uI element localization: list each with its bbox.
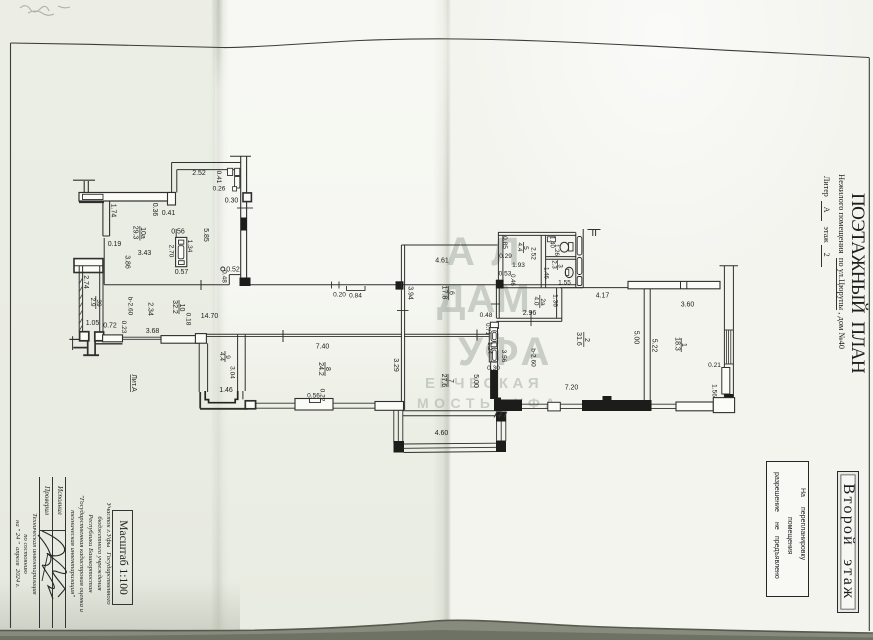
svg-text:0.71: 0.71: [484, 323, 490, 335]
svg-text:0.57: 0.57: [175, 269, 189, 276]
svg-text:0.85: 0.85: [501, 236, 508, 249]
svg-text:17.8: 17.8: [441, 286, 448, 300]
svg-text:1.74: 1.74: [110, 204, 117, 218]
svg-text:4.4: 4.4: [516, 242, 523, 251]
svg-text:0.41: 0.41: [215, 171, 222, 184]
svg-text:0.19: 0.19: [108, 241, 122, 248]
svg-text:Лит.А: Лит.А: [130, 374, 137, 392]
svg-text:7.40: 7.40: [316, 344, 330, 351]
svg-text:4.60: 4.60: [435, 430, 449, 437]
svg-text:3.86: 3.86: [124, 255, 131, 269]
svg-text:4.61: 4.61: [435, 258, 449, 265]
svg-text:2.74: 2.74: [82, 275, 89, 289]
svg-text:0.21: 0.21: [708, 362, 721, 369]
svg-text:1.34: 1.34: [186, 240, 193, 253]
svg-text:2: 2: [583, 338, 590, 342]
svg-text:0.18: 0.18: [184, 313, 191, 326]
svg-text:4.0: 4.0: [532, 296, 539, 305]
svg-text:2.52: 2.52: [529, 247, 536, 260]
svg-text:3.04: 3.04: [228, 366, 235, 379]
svg-text:5.22: 5.22: [651, 339, 658, 353]
svg-text:b-2.60: b-2.60: [529, 348, 536, 367]
svg-text:14.70: 14.70: [201, 313, 219, 320]
svg-text:1.05: 1.05: [86, 320, 100, 327]
svg-text:0.56: 0.56: [171, 229, 185, 236]
svg-text:2.3: 2.3: [550, 260, 556, 269]
svg-text:5.00: 5.00: [472, 374, 479, 388]
svg-text:1.93: 1.93: [512, 262, 525, 269]
svg-text:1.46: 1.46: [219, 387, 233, 394]
svg-text:0.29: 0.29: [499, 253, 512, 260]
svg-text:3.94: 3.94: [407, 286, 414, 300]
svg-text:18.3: 18.3: [673, 337, 680, 351]
svg-text:0.41: 0.41: [162, 210, 176, 217]
svg-text:2.96: 2.96: [523, 310, 537, 317]
svg-text:31.6: 31.6: [575, 332, 582, 346]
svg-text:1.24: 1.24: [486, 342, 492, 354]
svg-text:b-2.60: b-2.60: [126, 297, 133, 316]
svg-text:2.9: 2.9: [89, 297, 96, 306]
svg-text:1.26: 1.26: [553, 244, 559, 256]
svg-text:27.6: 27.6: [440, 374, 447, 388]
svg-text:0.48: 0.48: [220, 270, 227, 283]
svg-text:32.2: 32.2: [171, 300, 178, 314]
svg-text:2.34: 2.34: [147, 302, 154, 316]
svg-text:3.43: 3.43: [138, 250, 152, 257]
svg-text:3.56: 3.56: [500, 350, 507, 363]
svg-text:0.22: 0.22: [318, 389, 325, 402]
svg-text:1.36: 1.36: [552, 294, 559, 307]
svg-text:4.4: 4.4: [218, 352, 225, 361]
svg-text:0.46: 0.46: [509, 274, 515, 286]
svg-text:0.84: 0.84: [349, 293, 362, 300]
svg-text:3.68: 3.68: [146, 328, 160, 335]
svg-text:1.55: 1.55: [558, 280, 571, 287]
svg-text:0.72: 0.72: [103, 323, 117, 330]
svg-text:0.26: 0.26: [213, 186, 226, 193]
svg-text:5.85: 5.85: [202, 228, 209, 242]
svg-text:1.46: 1.46: [543, 267, 549, 279]
svg-text:2.70: 2.70: [168, 245, 175, 258]
svg-text:0.48: 0.48: [480, 312, 493, 319]
svg-text:0.30: 0.30: [487, 365, 500, 372]
svg-text:0.56: 0.56: [307, 393, 320, 400]
svg-text:29.3: 29.3: [132, 226, 139, 240]
svg-text:0.30: 0.30: [225, 198, 239, 205]
svg-text:4.17: 4.17: [596, 293, 610, 300]
svg-text:3.60: 3.60: [681, 302, 695, 309]
svg-text:7.20: 7.20: [565, 385, 579, 392]
svg-text:1.56: 1.56: [710, 384, 717, 397]
svg-text:5.00: 5.00: [633, 331, 640, 345]
svg-text:3.29: 3.29: [392, 358, 399, 372]
svg-text:0.20: 0.20: [333, 292, 346, 299]
svg-text:0.36: 0.36: [151, 203, 158, 217]
svg-text:0.23: 0.23: [120, 321, 127, 334]
svg-text:2.52: 2.52: [192, 170, 206, 177]
svg-text:24.2: 24.2: [317, 362, 324, 376]
